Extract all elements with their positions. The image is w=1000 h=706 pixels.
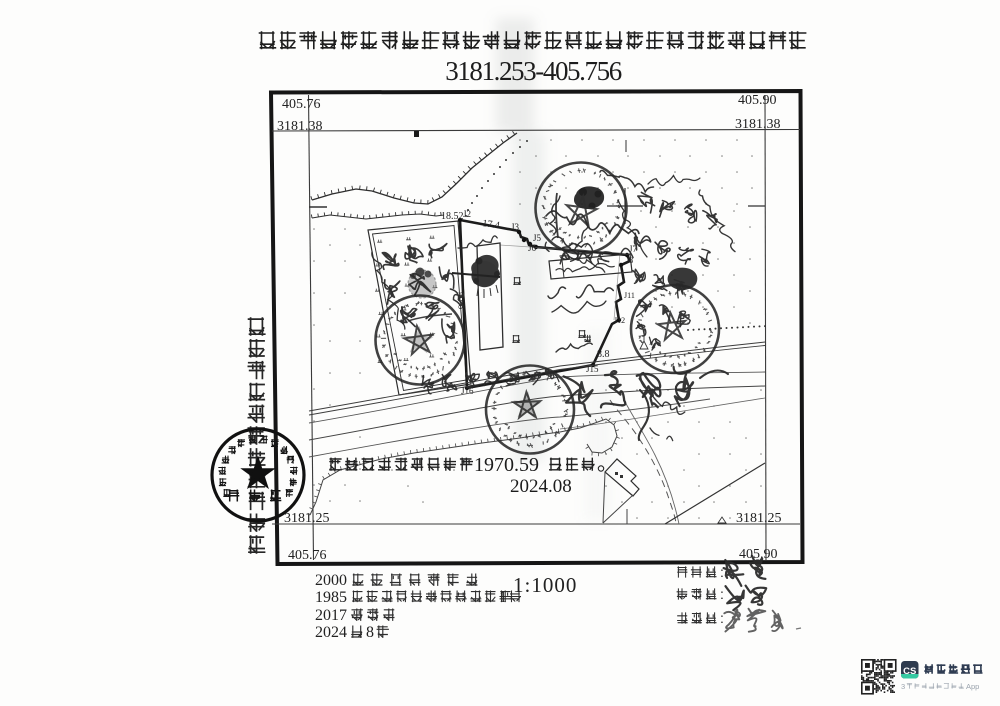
svg-text:3181.253-405.756: 3181.253-405.756 (445, 56, 621, 86)
svg-text:2024.08: 2024.08 (510, 476, 572, 497)
svg-text:8.8: 8.8 (597, 349, 610, 360)
svg-text:J3: J3 (511, 222, 520, 232)
svg-text:J8: J8 (626, 256, 633, 265)
svg-text:1970.59: 1970.59 (474, 454, 539, 476)
svg-text:1:1000: 1:1000 (513, 573, 577, 597)
svg-text:8: 8 (366, 624, 374, 641)
svg-text:J12: J12 (614, 316, 625, 325)
svg-text:J2: J2 (463, 209, 471, 219)
svg-text:J5: J5 (533, 233, 542, 243)
svg-text:3181.25: 3181.25 (284, 511, 330, 526)
svg-text:3181.25: 3181.25 (736, 511, 782, 526)
svg-text:J6: J6 (528, 243, 537, 253)
svg-text:2000: 2000 (315, 572, 347, 589)
svg-text::: : (720, 564, 724, 580)
svg-text:J11: J11 (624, 291, 635, 300)
svg-text:3181.38: 3181.38 (277, 119, 323, 134)
svg-text::: : (720, 610, 724, 626)
svg-text:2017: 2017 (315, 607, 347, 624)
svg-text:App: App (966, 682, 979, 691)
svg-text:1985: 1985 (315, 589, 347, 606)
svg-text:405.76: 405.76 (282, 97, 321, 112)
svg-text:405.90: 405.90 (738, 93, 777, 108)
svg-text:CS: CS (903, 666, 916, 677)
svg-text:18.52: 18.52 (441, 211, 464, 222)
svg-text::: : (720, 586, 724, 602)
svg-text:405.76: 405.76 (288, 548, 327, 563)
svg-text:2024: 2024 (315, 624, 347, 641)
svg-text:17.4: 17.4 (482, 218, 501, 231)
svg-text:3: 3 (901, 682, 905, 691)
svg-text:1: 1 (499, 589, 507, 606)
svg-text:3181.38: 3181.38 (735, 117, 781, 132)
